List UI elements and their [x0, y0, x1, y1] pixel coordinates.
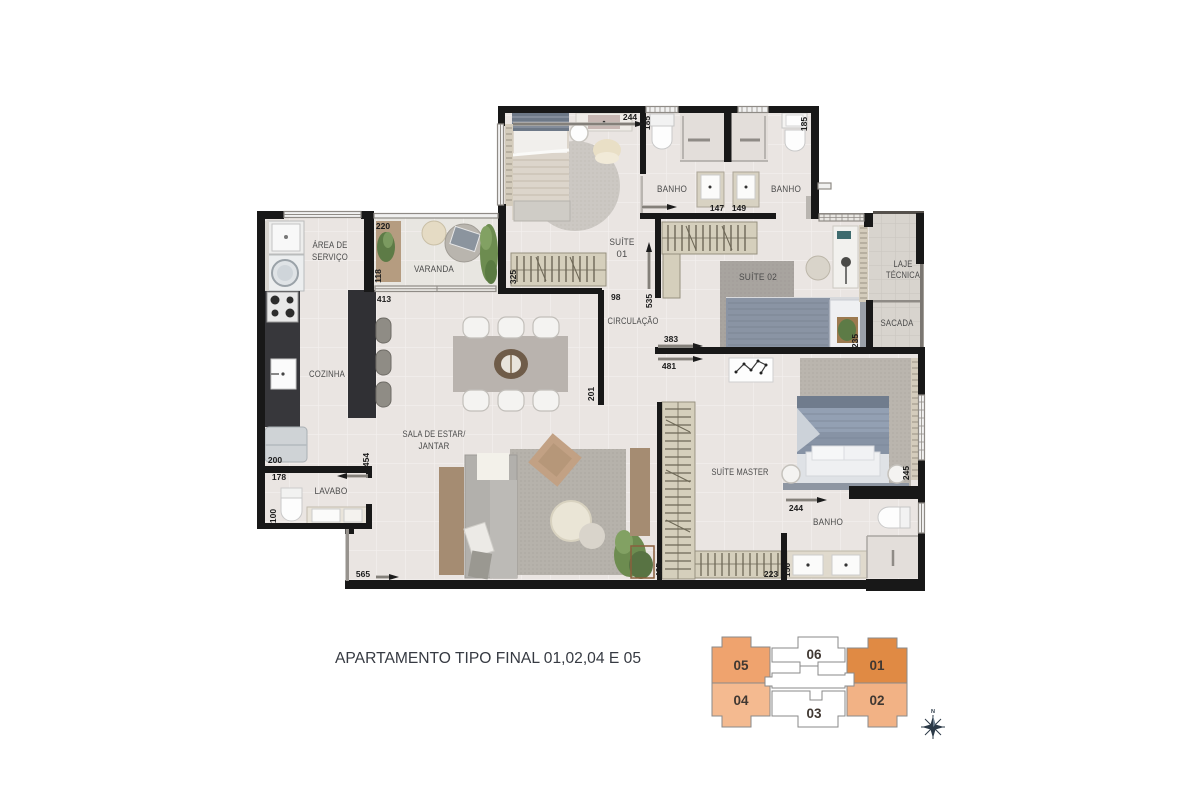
svg-text:COZINHA: COZINHA [309, 369, 345, 379]
svg-text:201: 201 [586, 387, 596, 401]
svg-text:SACADA: SACADA [881, 318, 914, 328]
svg-text:383: 383 [664, 334, 678, 344]
svg-text:ÁREA DE: ÁREA DE [313, 240, 348, 250]
svg-text:CIRCULAÇÃO: CIRCULAÇÃO [608, 316, 659, 326]
svg-text:N: N [931, 709, 935, 715]
svg-text:01: 01 [869, 658, 885, 673]
svg-text:BANHO: BANHO [813, 517, 843, 527]
svg-text:565: 565 [356, 569, 370, 579]
svg-text:03: 03 [806, 706, 822, 721]
svg-text:147: 147 [710, 203, 724, 213]
svg-text:01: 01 [617, 249, 628, 259]
svg-text:SUÍTE: SUÍTE [610, 237, 635, 247]
svg-text:200: 200 [268, 455, 282, 465]
svg-text:JANTAR: JANTAR [419, 441, 450, 451]
svg-text:98: 98 [611, 292, 621, 302]
svg-text:425: 425 [654, 563, 664, 577]
svg-text:SUÍTE MASTER: SUÍTE MASTER [712, 467, 769, 477]
svg-text:244: 244 [789, 503, 803, 513]
svg-text:244: 244 [623, 112, 637, 122]
svg-text:535: 535 [644, 294, 654, 308]
svg-text:05: 05 [733, 658, 749, 673]
svg-text:LAVABO: LAVABO [315, 486, 348, 496]
svg-text:156: 156 [782, 563, 792, 577]
svg-text:BANHO: BANHO [657, 184, 687, 194]
svg-text:SUÍTE 02: SUÍTE 02 [739, 272, 777, 282]
svg-text:413: 413 [377, 294, 391, 304]
svg-text:185: 185 [642, 116, 652, 130]
svg-text:SERVIÇO: SERVIÇO [312, 252, 348, 262]
svg-text:235: 235 [850, 334, 860, 348]
svg-text:481: 481 [662, 361, 676, 371]
svg-text:454: 454 [361, 453, 371, 467]
svg-text:SALA DE ESTAR/: SALA DE ESTAR/ [403, 429, 466, 439]
svg-text:245: 245 [901, 466, 911, 480]
svg-text:118: 118 [373, 269, 383, 283]
svg-text:02: 02 [869, 693, 884, 708]
svg-text:185: 185 [799, 117, 809, 131]
svg-text:VARANDA: VARANDA [414, 264, 454, 274]
svg-text:06: 06 [806, 647, 822, 662]
svg-text:149: 149 [732, 203, 746, 213]
svg-text:223: 223 [764, 569, 778, 579]
svg-text:178: 178 [272, 472, 286, 482]
svg-text:100: 100 [268, 509, 278, 523]
svg-text:220: 220 [376, 221, 390, 231]
svg-text:LAJE: LAJE [894, 259, 913, 269]
svg-text:BANHO: BANHO [771, 184, 801, 194]
svg-text:04: 04 [733, 693, 749, 708]
svg-text:325: 325 [508, 270, 518, 284]
svg-text:TÉCNICA: TÉCNICA [886, 270, 920, 280]
svg-text:APARTAMENTO TIPO FINAL 01,02,0: APARTAMENTO TIPO FINAL 01,02,04 E 05 [335, 650, 641, 667]
